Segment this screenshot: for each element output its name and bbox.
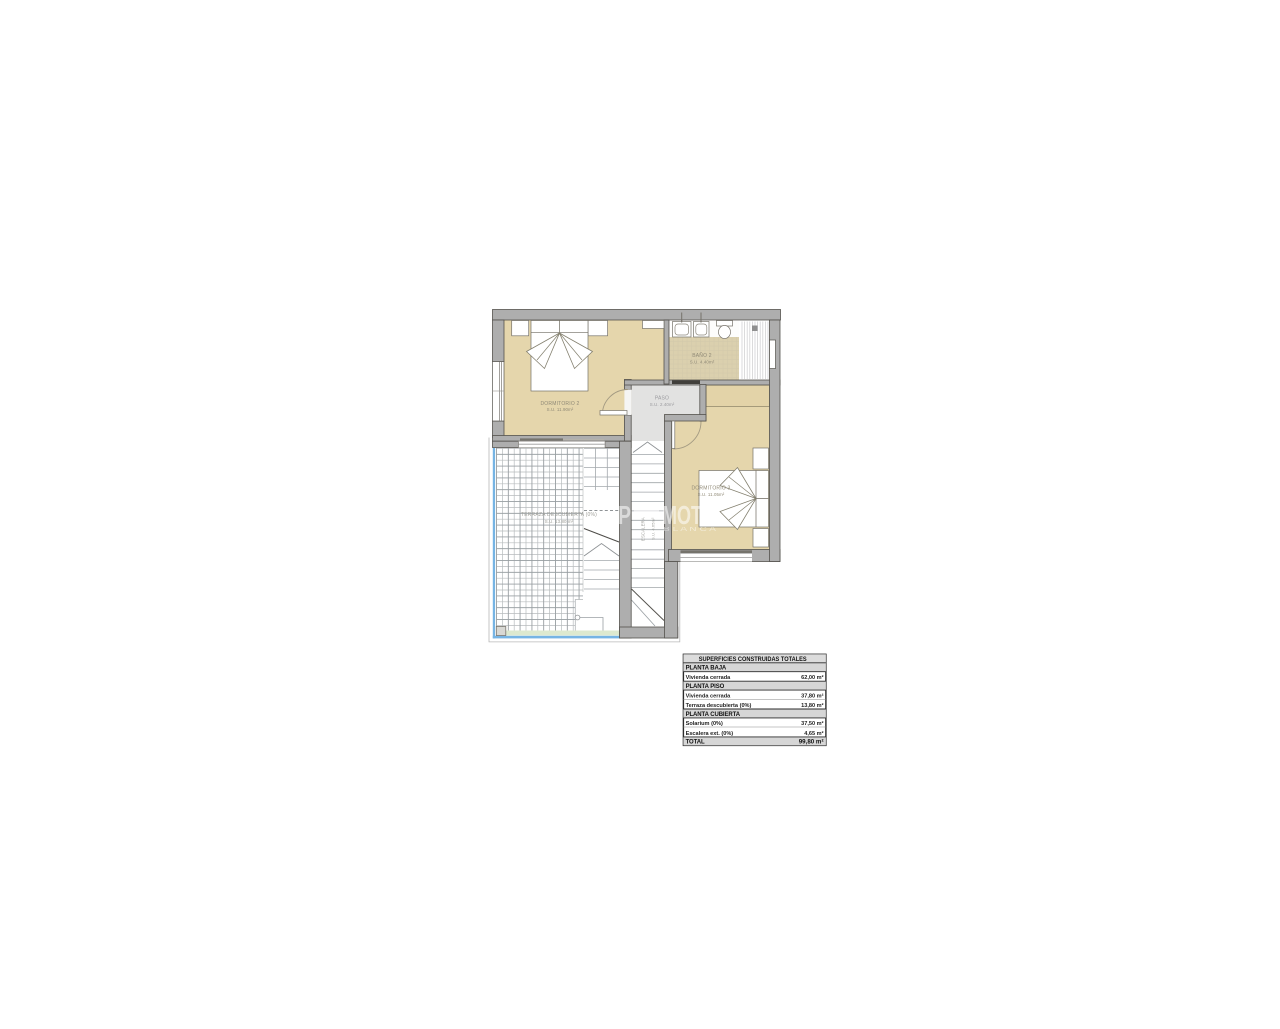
svg-text:S.U. 11.90m²: S.U. 11.90m² (547, 407, 574, 412)
svg-text:S.U. 13.80 m²: S.U. 13.80 m² (545, 519, 574, 524)
svg-text:99,80 m²: 99,80 m² (799, 739, 824, 746)
svg-text:S.U. 4.40m²: S.U. 4.40m² (690, 359, 715, 364)
svg-text:TERRAZA DESCUBIERTA (0%): TERRAZA DESCUBIERTA (0%) (521, 512, 597, 518)
svg-text:PLANTA PISO: PLANTA PISO (686, 684, 725, 690)
svg-text:DORMITORIO 3: DORMITORIO 3 (692, 485, 731, 491)
svg-text:4,65 m²: 4,65 m² (804, 730, 823, 737)
svg-text:Vivienda cerrada: Vivienda cerrada (686, 675, 732, 681)
svg-text:S.U. 4.65m²: S.U. 4.65m² (651, 517, 656, 540)
svg-text:SUPERFICIES CONSTRUIDAS TOTALE: SUPERFICIES CONSTRUIDAS TOTALES (699, 656, 807, 663)
svg-text:Vivienda cerrada: Vivienda cerrada (686, 694, 732, 700)
svg-text:S.U. 11.05m²: S.U. 11.05m² (698, 492, 725, 497)
svg-text:TOTAL: TOTAL (686, 740, 705, 746)
svg-text:37,50 m²: 37,50 m² (801, 720, 824, 727)
svg-text:S.U. 2.40m²: S.U. 2.40m² (650, 402, 675, 407)
svg-text:Escalera ext. (0%): Escalera ext. (0%) (686, 731, 734, 737)
svg-text:P: P (618, 500, 631, 530)
svg-text:Terraza descubierta (0%): Terraza descubierta (0%) (686, 703, 752, 709)
svg-text:ESCALERA: ESCALERA (641, 517, 646, 541)
svg-text:MOTE: MOTE (662, 500, 714, 530)
svg-text:DORMITORIO 2: DORMITORIO 2 (541, 401, 580, 407)
svg-text:BAÑO 2: BAÑO 2 (692, 352, 712, 359)
svg-text:PLANTA CUBIERTA: PLANTA CUBIERTA (686, 712, 741, 718)
svg-text:Solarium (0%): Solarium (0%) (686, 721, 723, 727)
svg-text:PLANTA BAJA: PLANTA BAJA (686, 666, 727, 672)
svg-text:PASO: PASO (655, 396, 669, 402)
svg-text:13,80 m²: 13,80 m² (801, 702, 824, 709)
svg-text:B L A N C A: B L A N C A (663, 527, 716, 533)
svg-text:37,80 m²: 37,80 m² (801, 693, 824, 700)
svg-text:62,00 m²: 62,00 m² (801, 674, 824, 681)
